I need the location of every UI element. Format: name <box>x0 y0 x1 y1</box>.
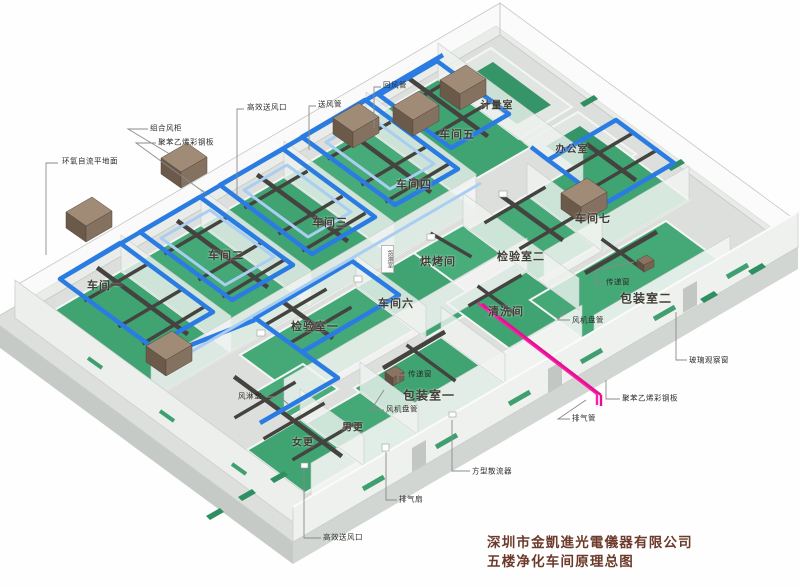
callout-return-duct: 回风管 <box>383 80 407 91</box>
drawing-title: 五楼净化车间原理总图 <box>487 553 693 572</box>
callout-exhaust-pipe: 排气管 <box>572 413 596 424</box>
callout-hepa-outlet-top: 高效送风口 <box>247 102 287 113</box>
cargo-shower-sign: 货淋室 <box>381 245 394 273</box>
callout-steel-panel-right: 聚苯乙烯彩钢板 <box>622 393 678 404</box>
callout-pass-window-bottom: 传递窗 <box>408 369 432 380</box>
callout-hepa-outlet-bottom: 高效送风口 <box>323 532 363 543</box>
room-label-workshop-5: 车间五 <box>439 126 475 142</box>
callout-pass-window-right: 传递窗 <box>606 277 630 288</box>
callout-exhaust-fan: 排气扇 <box>399 494 423 505</box>
callout-air-shower: 风淋室 <box>238 391 262 402</box>
room-label-workshop-2: 车间二 <box>208 247 244 263</box>
callout-ahu: 组合风柜 <box>150 123 182 134</box>
room-label-metering-room: 计量室 <box>481 97 514 112</box>
room-label-office: 办公室 <box>556 141 589 156</box>
callout-fan-coil-right: 风机盘管 <box>572 315 604 326</box>
callout-supply-duct: 送风管 <box>318 99 342 110</box>
callout-epoxy-floor: 环氧自流平地面 <box>62 156 118 167</box>
room-label-workshop-7: 车间七 <box>575 210 611 226</box>
isometric-cleanroom-diagram: 车间一 车间二 车间三 车间四 车间五 车间六 车间七 计量室 办公室 检验室一… <box>0 0 800 587</box>
room-label-inspection-2: 检验室二 <box>497 248 545 264</box>
company-name: 深圳市金凱進光電儀器有限公司 <box>487 534 693 553</box>
room-label-cleaning-room: 清洗间 <box>488 303 524 319</box>
room-label-packing-2: 包装室二 <box>620 290 672 307</box>
callout-steel-panel-top: 聚苯乙烯彩钢板 <box>158 137 214 148</box>
callout-fan-coil-bottom: 风机盘管 <box>386 404 418 415</box>
room-label-workshop-6: 车间六 <box>378 295 414 311</box>
room-label-packing-1: 包装室一 <box>403 387 455 404</box>
room-label-workshop-1: 车间一 <box>87 277 123 293</box>
room-label-women-changing: 女更 <box>292 434 314 449</box>
room-label-baking-room: 烘烤间 <box>420 253 456 269</box>
callout-observation-window: 玻璃观察窗 <box>689 355 729 366</box>
room-label-workshop-4: 车间四 <box>396 176 432 192</box>
room-label-inspection-1: 检验室一 <box>291 318 339 334</box>
title-block: 深圳市金凱進光電儀器有限公司 五楼净化车间原理总图 <box>487 534 693 572</box>
room-label-workshop-3: 车间三 <box>312 214 348 230</box>
callout-square-diffuser: 方型散流器 <box>472 466 512 477</box>
room-label-men-changing: 男更 <box>342 419 364 434</box>
